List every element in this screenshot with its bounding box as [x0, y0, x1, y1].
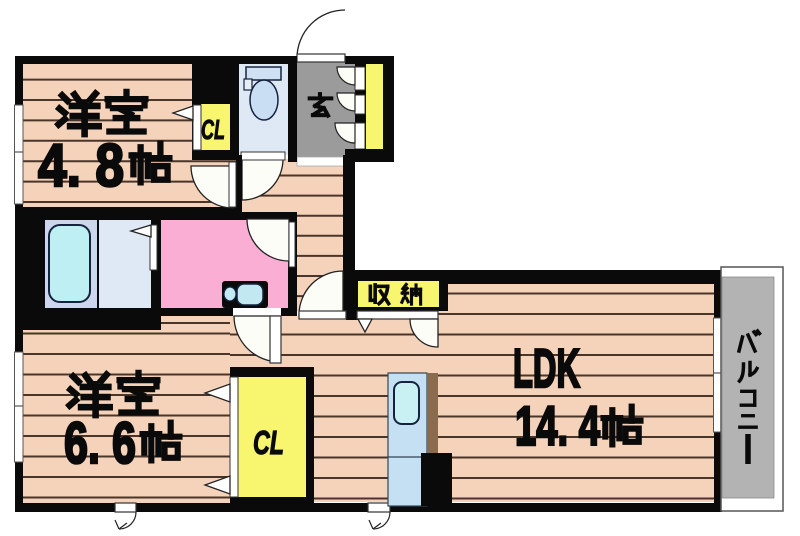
svg-text:LDK: LDK — [513, 337, 580, 399]
svg-text:14. 4: 14. 4 — [515, 394, 600, 457]
svg-text:CL: CL — [201, 114, 225, 145]
svg-text:6. 6: 6. 6 — [64, 411, 136, 476]
svg-text:4. 8: 4. 8 — [38, 132, 124, 199]
svg-text:CL: CL — [253, 424, 284, 461]
